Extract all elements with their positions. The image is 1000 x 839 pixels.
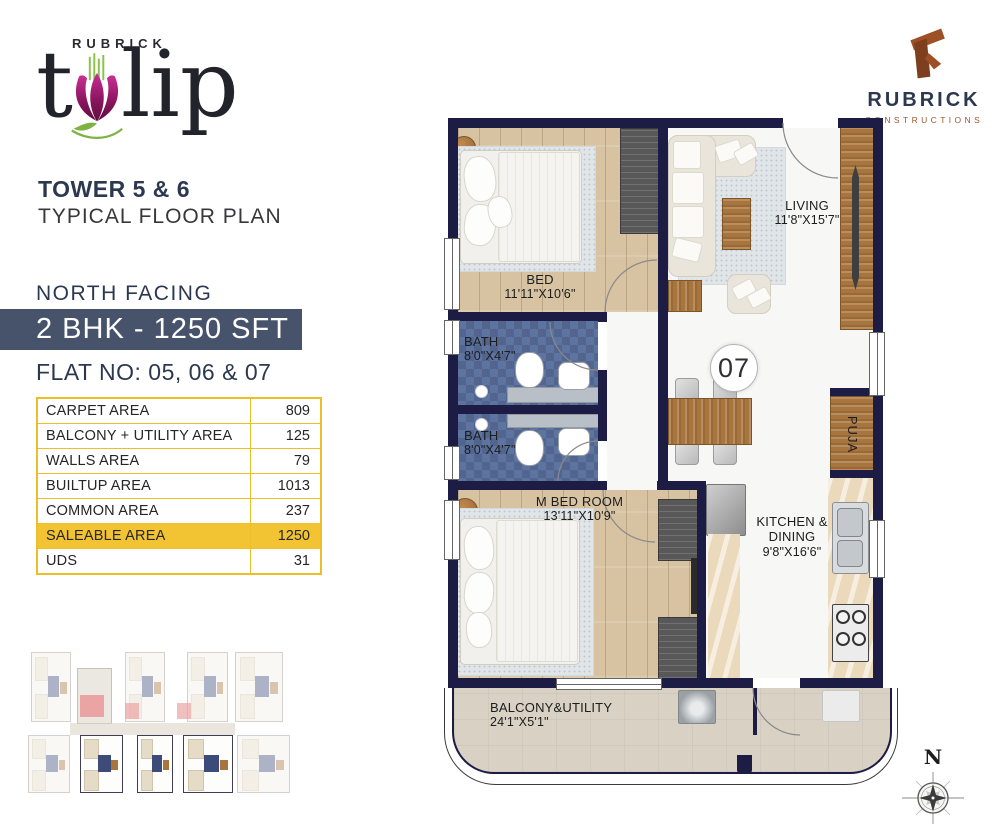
compass: N (898, 744, 968, 834)
dining-table (668, 398, 752, 445)
tulip-word-right: lip (121, 44, 239, 127)
fridge (706, 484, 746, 536)
wall (598, 312, 607, 322)
table-row: COMMON AREA237 (38, 498, 320, 523)
key-plan-unit (235, 652, 283, 722)
area-value: 1013 (250, 474, 320, 498)
burner-icon (852, 610, 866, 624)
compass-north-letter: N (924, 745, 942, 769)
area-value: 31 (250, 549, 320, 573)
flat-numbers: FLAT NO: 05, 06 & 07 (36, 359, 271, 386)
window (556, 678, 662, 690)
burner-icon (852, 632, 866, 646)
coffee-table (722, 198, 751, 250)
wall (706, 678, 753, 688)
window (869, 332, 885, 396)
key-plan-stairs (80, 695, 104, 717)
bath2-sink (558, 428, 590, 456)
living-label: LIVING 11'8"X15'7" (752, 198, 862, 228)
utility-unit (822, 690, 860, 722)
key-plan-unit (31, 652, 71, 722)
key-plan (25, 645, 297, 797)
key-plan-unit (187, 652, 228, 722)
window (869, 520, 885, 578)
area-label: BUILTUP AREA (38, 478, 250, 494)
key-plan-unit-highlighted (137, 735, 173, 793)
wall (830, 470, 873, 478)
sofa-cushion (672, 206, 704, 238)
key-plan-unit-highlighted (80, 735, 123, 793)
window (444, 238, 460, 310)
area-value: 1250 (250, 524, 320, 548)
wall (448, 118, 458, 688)
area-label: WALLS AREA (38, 453, 250, 469)
builder-logo: RUBRICK CONSTRUCTIONS (853, 24, 995, 125)
bath1-label: BATH 8'0"X4'7" (464, 334, 516, 364)
unit-type-banner: 2 BHK - 1250 SFT (0, 309, 302, 350)
area-value: 237 (250, 499, 320, 523)
facing-label: NORTH FACING (36, 282, 212, 306)
wall (448, 312, 607, 321)
bath2-vanity (507, 414, 600, 428)
table-row-saleable: SALEABLE AREA1250 (38, 523, 320, 548)
puja-label: PUJA (845, 415, 860, 452)
bath2-toilet (515, 430, 544, 466)
table-row: BALCONY + UTILITY AREA125 (38, 423, 320, 448)
master-bed-blanket (496, 520, 578, 662)
wall (658, 678, 697, 688)
table-row: BUILTUP AREA1013 (38, 473, 320, 498)
wall (448, 678, 558, 688)
compass-rose-icon: N (898, 744, 968, 834)
wall (800, 678, 883, 688)
washing-machine (678, 690, 716, 724)
tulip-word-left: t (36, 44, 73, 127)
wall (448, 118, 783, 128)
key-plan-corridor (70, 723, 235, 735)
window (444, 446, 460, 480)
key-plan-unit-highlighted (183, 735, 233, 793)
wall (658, 118, 668, 481)
master-wardrobe (658, 617, 699, 679)
master-bedroom-label: M BED ROOM 13'11"X10'9" (492, 494, 667, 524)
key-plan-stairs (125, 703, 139, 719)
bath1-vanity (507, 387, 600, 403)
kitchen-label: KITCHEN & DINING 9'8"X16'6" (742, 514, 842, 559)
area-label: BALCONY + UTILITY AREA (38, 428, 250, 444)
window (444, 500, 460, 560)
shower-icon (475, 385, 488, 398)
table-row: WALLS AREA79 (38, 448, 320, 473)
area-value: 809 (250, 399, 320, 423)
sofa-cushion (672, 172, 704, 204)
wall (873, 118, 883, 688)
area-label: SALEABLE AREA (38, 528, 250, 544)
area-label: COMMON AREA (38, 503, 250, 519)
wall (598, 370, 607, 441)
area-label: UDS (38, 553, 250, 569)
balcony-door-leaf (753, 688, 757, 735)
wall (697, 481, 706, 688)
builder-name: RUBRICK (853, 89, 995, 112)
tulip-flower-icon (70, 50, 124, 150)
area-label: CARPET AREA (38, 403, 250, 419)
key-plan-unit (237, 735, 290, 793)
window (444, 320, 460, 355)
table-row: CARPET AREA809 (38, 399, 320, 423)
kitchen-counter-left (708, 534, 740, 678)
bath1-toilet (515, 352, 544, 388)
plan-type: TYPICAL FLOOR PLAN (38, 205, 282, 229)
bedroom-wardrobe (620, 128, 660, 234)
area-value: 125 (250, 424, 320, 448)
area-table: CARPET AREA809 BALCONY + UTILITY AREA125… (36, 397, 322, 575)
corridor-floor (607, 312, 658, 490)
wall (448, 481, 607, 490)
bath2-label: BATH 8'0"X4'7" (464, 428, 516, 458)
side-table (668, 280, 702, 312)
burner-icon (836, 610, 850, 624)
builder-mark-icon (891, 24, 957, 82)
table-row: UDS31 (38, 548, 320, 573)
bedroom-label: BED 11'11"X10'6" (460, 272, 620, 302)
puja-room: PUJA (830, 396, 875, 472)
wall (830, 388, 873, 396)
balcony-divider (737, 755, 752, 774)
unit-number-badge: 07 (710, 344, 758, 392)
wall (448, 405, 598, 414)
balcony-label: BALCONY&UTILITY 24'1"X5'1" (490, 700, 612, 730)
area-value: 79 (250, 449, 320, 473)
bath1-sink (558, 362, 590, 390)
key-plan-stairs (177, 703, 191, 719)
key-plan-unit (28, 735, 70, 793)
burner-icon (836, 632, 850, 646)
sofa-cushion (673, 141, 701, 169)
tulip-wordmark: t lip (36, 44, 239, 150)
tower-title: TOWER 5 & 6 (38, 176, 190, 203)
